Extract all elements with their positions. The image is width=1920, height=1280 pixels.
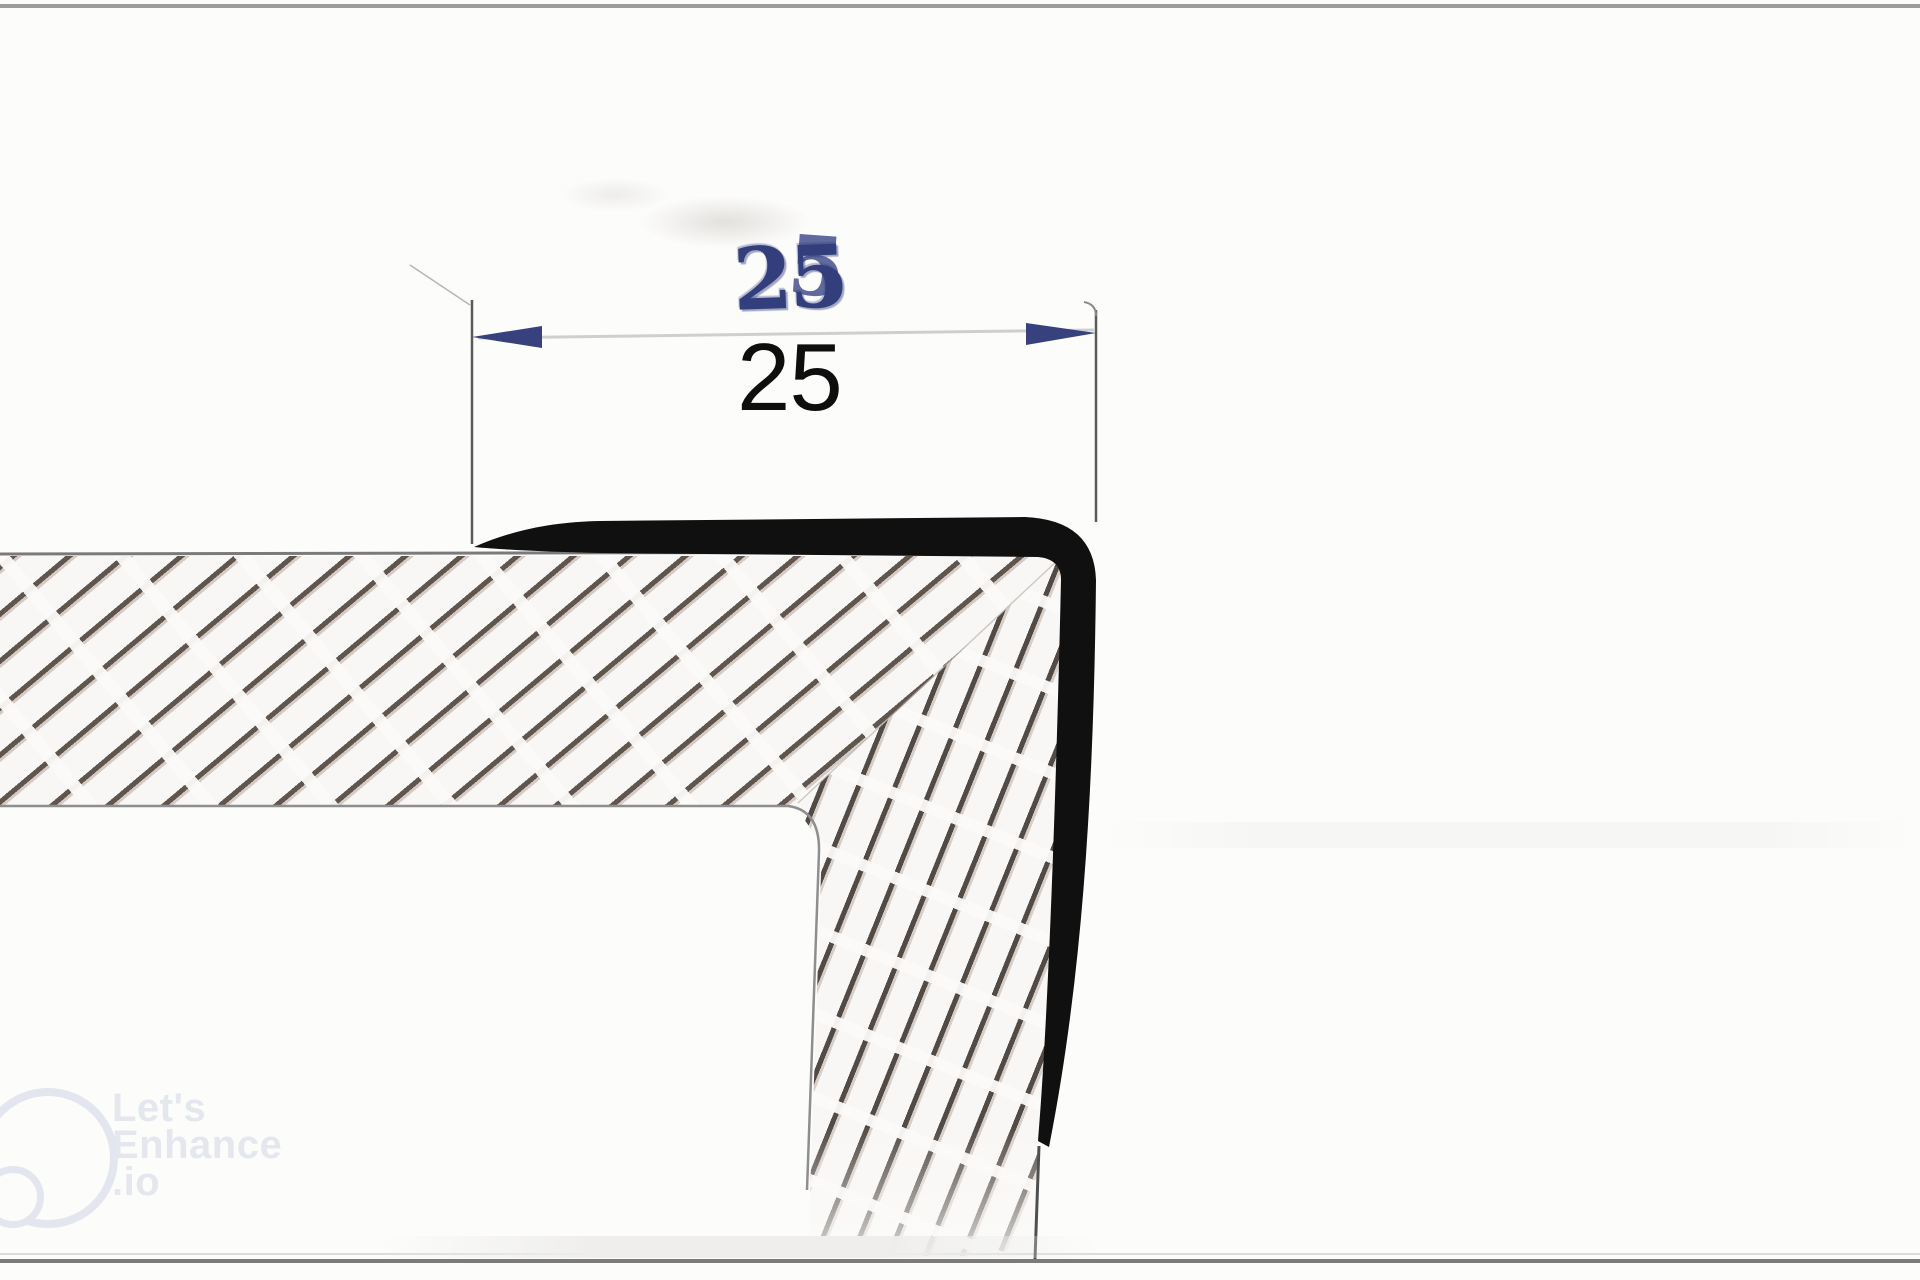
watermark-text-line2: Enhance xyxy=(112,1127,282,1164)
floor-shadow-wash xyxy=(380,1236,1100,1258)
dimension-extension-overshoot-left xyxy=(410,265,470,305)
watermark-text-line1: Let's xyxy=(112,1090,282,1127)
lets-enhance-watermark: Let's Enhance .io xyxy=(0,1080,320,1240)
dimension-extension-hook-right xyxy=(1084,302,1096,316)
watermark-text: Let's Enhance .io xyxy=(112,1090,282,1201)
dimension-arrow-right-icon xyxy=(1026,323,1096,345)
corner-miter-line xyxy=(798,560,1058,803)
technical-drawing-page: 5 25 25 Let's Enhance .io xyxy=(0,0,1920,1280)
dimension-value-printed: 25 xyxy=(737,330,842,426)
dimension-arrow-left-icon xyxy=(472,326,542,348)
faint-background-streak xyxy=(1100,822,1920,848)
watermark-text-line3: .io xyxy=(112,1164,282,1201)
dimension-value-handwritten: 25 xyxy=(732,234,847,324)
